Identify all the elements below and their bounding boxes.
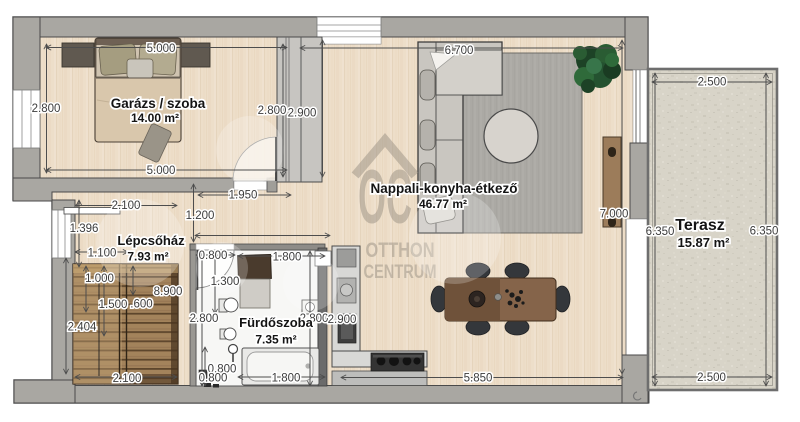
svg-text:Garázs / szoba: Garázs / szoba xyxy=(111,96,206,111)
svg-text:2.800: 2.800 xyxy=(190,313,219,325)
svg-text:7.35 m²: 7.35 m² xyxy=(255,333,296,347)
svg-text:7.93 m²: 7.93 m² xyxy=(127,250,168,264)
svg-text:5.000: 5.000 xyxy=(147,165,176,177)
svg-text:1.950: 1.950 xyxy=(229,190,258,202)
svg-text:2.900: 2.900 xyxy=(328,314,357,326)
svg-text:2.500: 2.500 xyxy=(698,77,727,89)
svg-text:OC: OC xyxy=(358,155,412,240)
svg-text:2.100: 2.100 xyxy=(112,200,141,212)
svg-text:6.350: 6.350 xyxy=(750,226,779,238)
svg-text:1.500: 1.500 xyxy=(99,299,128,311)
svg-text:7.000: 7.000 xyxy=(600,209,629,221)
svg-text:15.87 m²: 15.87 m² xyxy=(677,235,730,250)
svg-text:2.500: 2.500 xyxy=(697,372,726,384)
svg-text:46.77 m²: 46.77 m² xyxy=(419,197,467,211)
svg-text:1.396: 1.396 xyxy=(70,223,99,235)
svg-text:2.800: 2.800 xyxy=(32,103,61,115)
svg-text:1.200: 1.200 xyxy=(186,210,215,222)
svg-text:0.800: 0.800 xyxy=(199,250,228,262)
svg-text:8.900: 8.900 xyxy=(154,286,183,298)
svg-text:0.800: 0.800 xyxy=(199,373,228,385)
svg-text:1.300: 1.300 xyxy=(211,276,240,288)
svg-text:Lépcsőház: Lépcsőház xyxy=(117,233,185,248)
svg-text:1.100: 1.100 xyxy=(88,248,117,260)
svg-text:2.800: 2.800 xyxy=(258,105,287,117)
svg-text:Fürdőszoba: Fürdőszoba xyxy=(239,315,313,330)
svg-text:2.900: 2.900 xyxy=(288,108,317,120)
svg-text:6.700: 6.700 xyxy=(445,45,474,57)
svg-text:Nappali-konyha-étkező: Nappali-konyha-étkező xyxy=(370,181,517,196)
svg-text:1.800: 1.800 xyxy=(273,252,302,264)
svg-text:6.350: 6.350 xyxy=(646,226,675,238)
svg-text:5.850: 5.850 xyxy=(464,373,493,385)
svg-text:2.100: 2.100 xyxy=(113,373,142,385)
svg-text:Terasz: Terasz xyxy=(675,217,725,234)
svg-text:5.000: 5.000 xyxy=(147,43,176,55)
svg-text:2.404: 2.404 xyxy=(68,322,97,334)
svg-text:.600: .600 xyxy=(130,299,152,311)
svg-text:14.00 m²: 14.00 m² xyxy=(131,111,179,125)
svg-text:1.000: 1.000 xyxy=(85,273,114,285)
svg-text:1.800: 1.800 xyxy=(272,373,301,385)
